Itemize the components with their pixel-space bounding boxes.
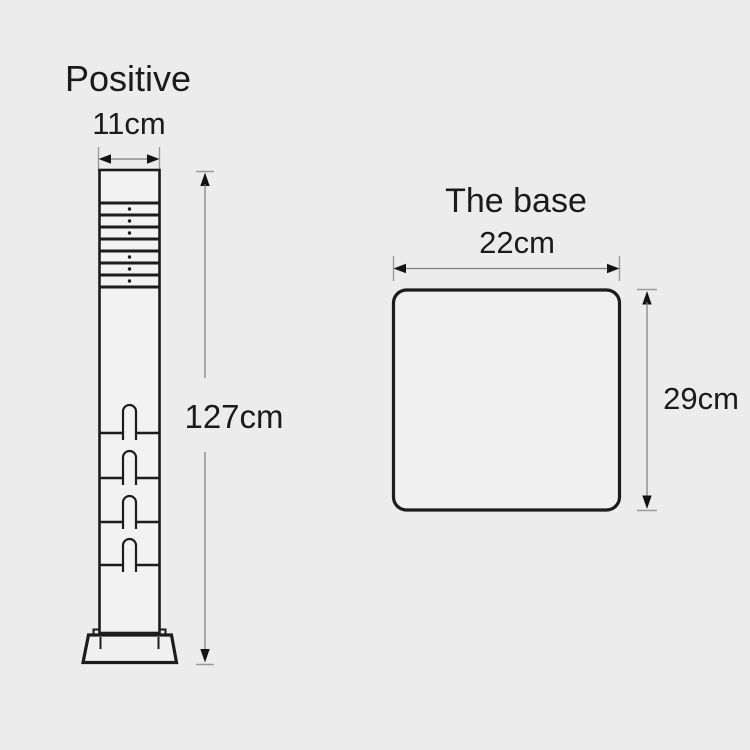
post-width-dimension-label: 11cm (92, 106, 166, 141)
post-height-dimension-label: 127cm (184, 398, 283, 435)
base-height-dimension-label: 29cm (663, 381, 739, 416)
stripe-rivet-dot (128, 255, 131, 258)
stripe-rivet-dot (128, 219, 131, 222)
stripe-rivet-dot (128, 279, 131, 282)
stripe-rivet-dot (128, 267, 131, 270)
dimension-diagram: Positive 11cm (0, 0, 750, 750)
stripe-rivet-dot (128, 207, 131, 210)
post-figure-title: Positive (65, 58, 191, 99)
base-plate-outline (394, 290, 620, 510)
base-width-dimension-label: 22cm (479, 225, 555, 260)
foot-trapezoid (83, 635, 177, 663)
base-figure-title: The base (445, 182, 587, 220)
post-foot (83, 630, 177, 663)
stripe-rivet-dot (128, 231, 131, 234)
